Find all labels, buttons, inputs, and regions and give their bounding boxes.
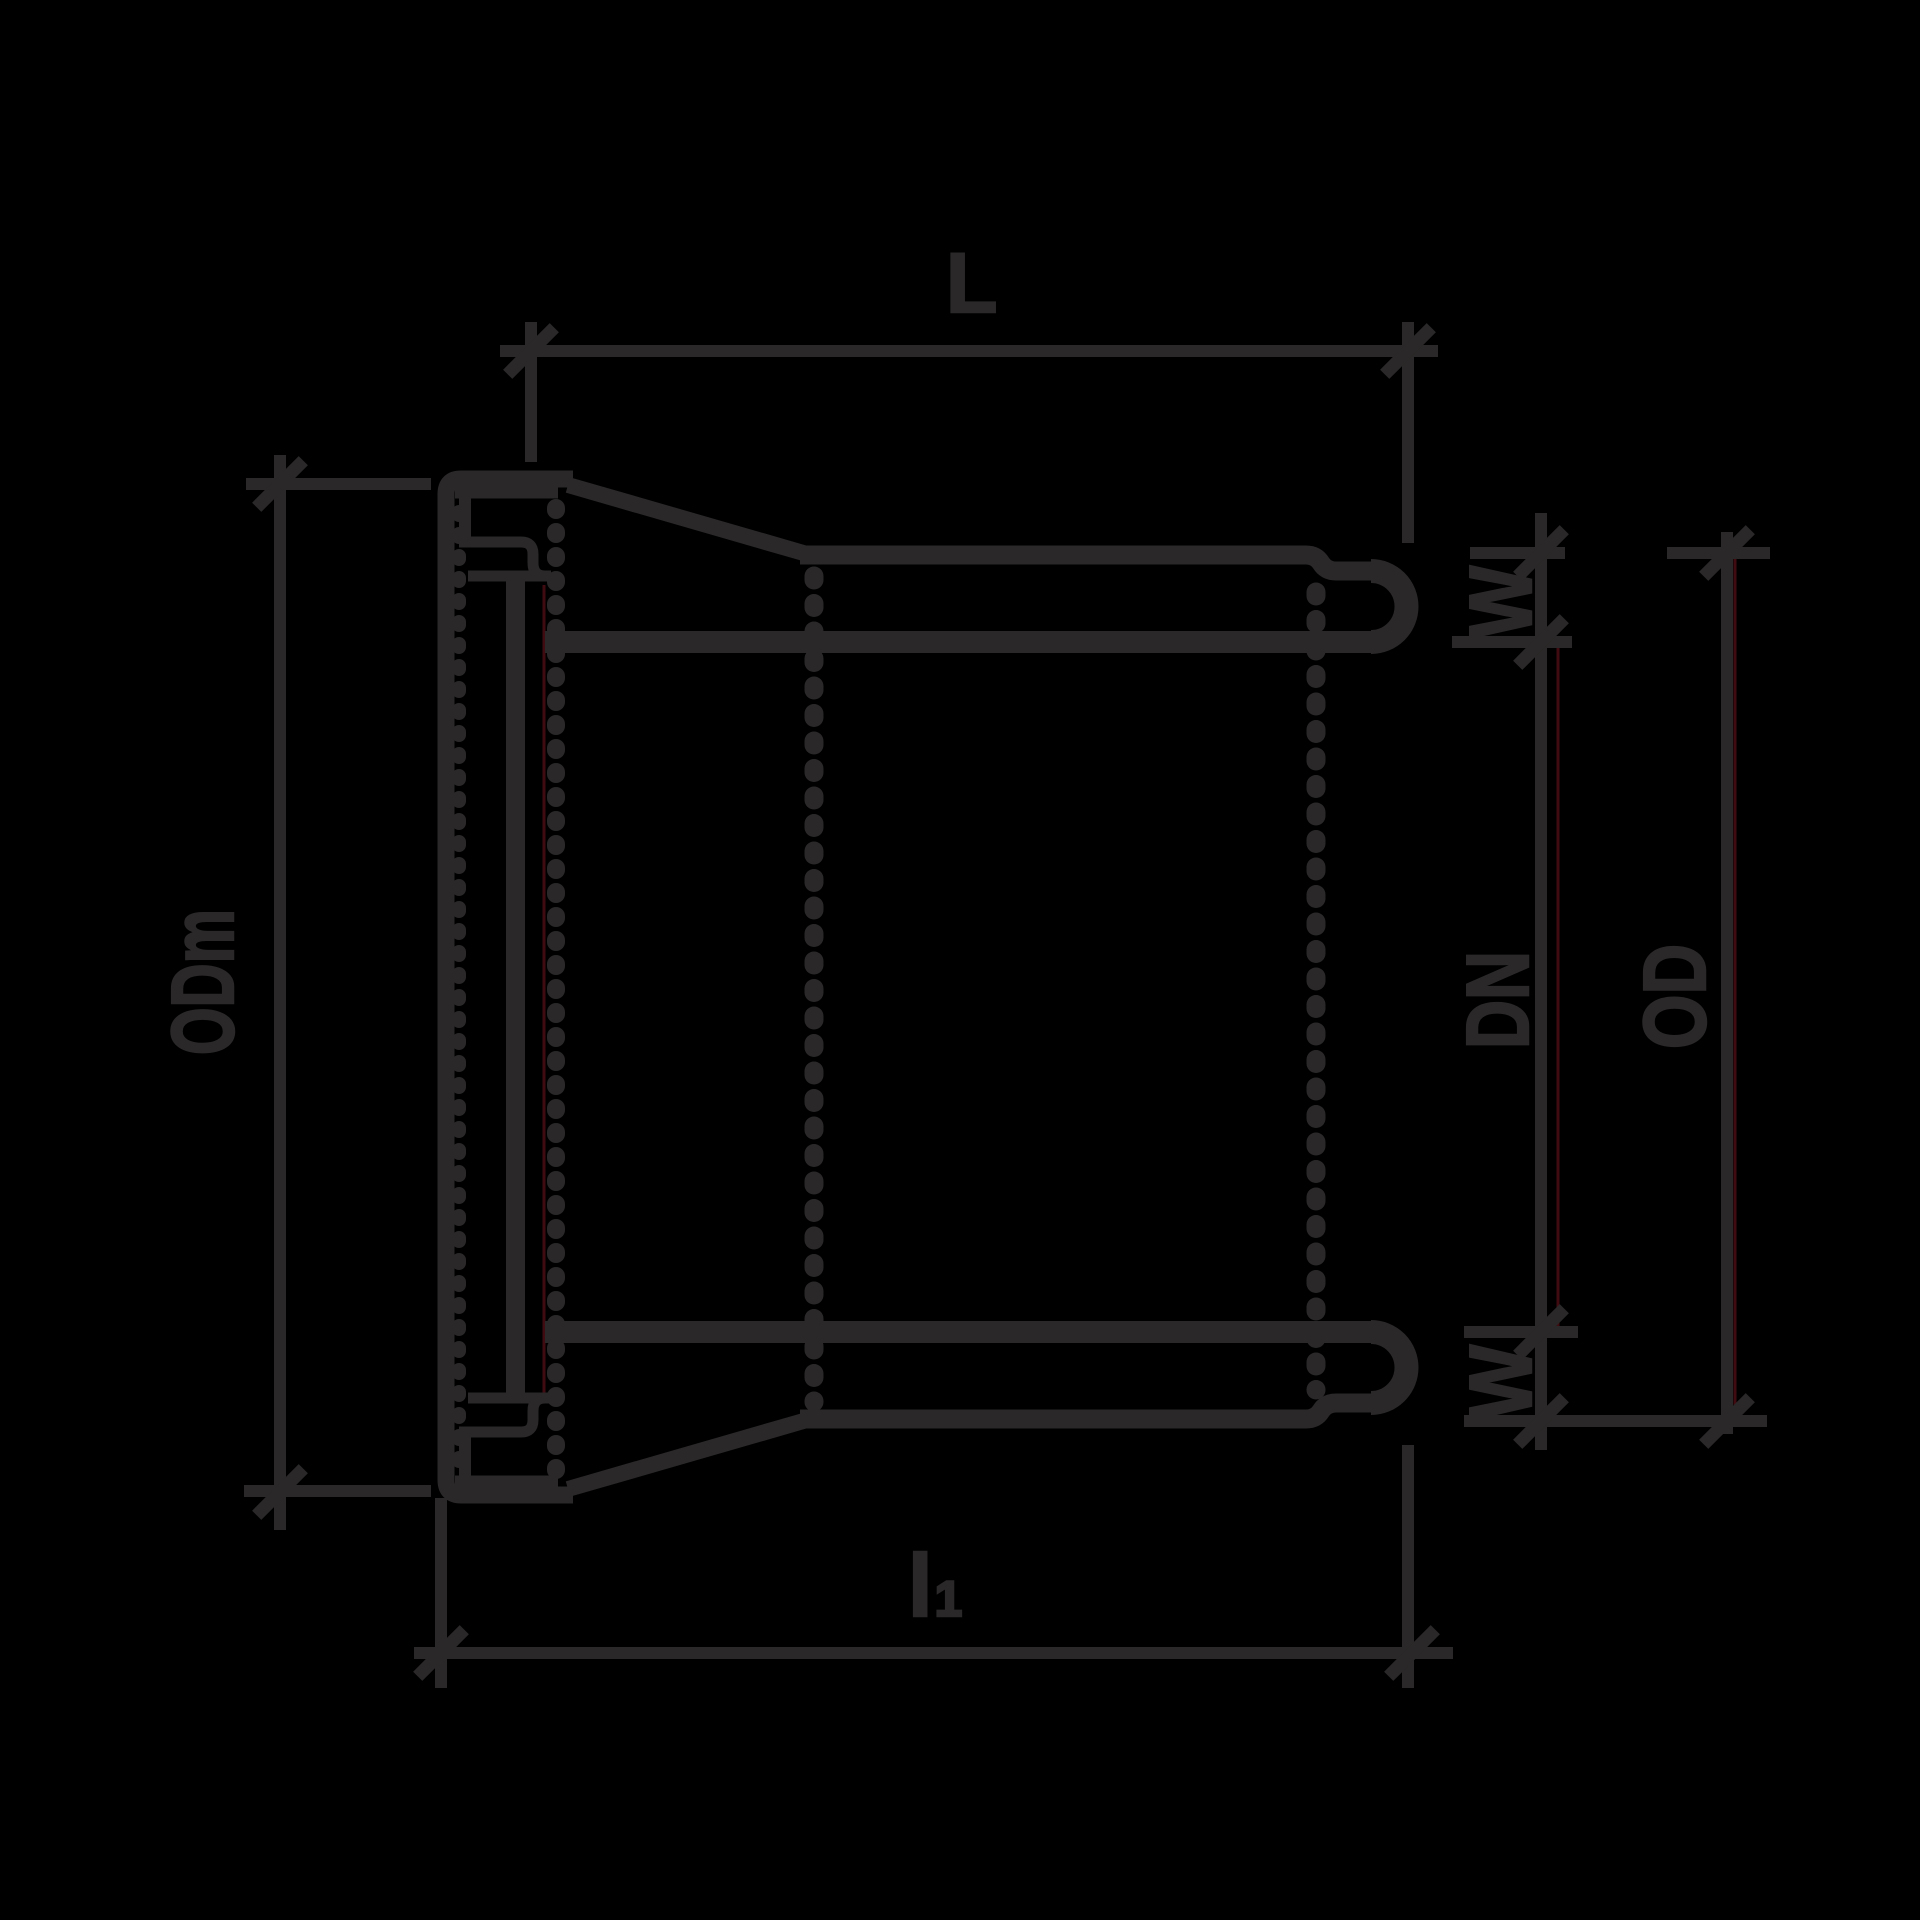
- svg-text:DN: DN: [1448, 951, 1547, 1049]
- svg-text:OD: OD: [1625, 944, 1724, 1049]
- svg-text:L: L: [946, 236, 997, 330]
- svg-text:ODm: ODm: [153, 909, 252, 1055]
- svg-text:W: W: [1451, 1345, 1550, 1420]
- svg-text:W: W: [1451, 566, 1550, 638]
